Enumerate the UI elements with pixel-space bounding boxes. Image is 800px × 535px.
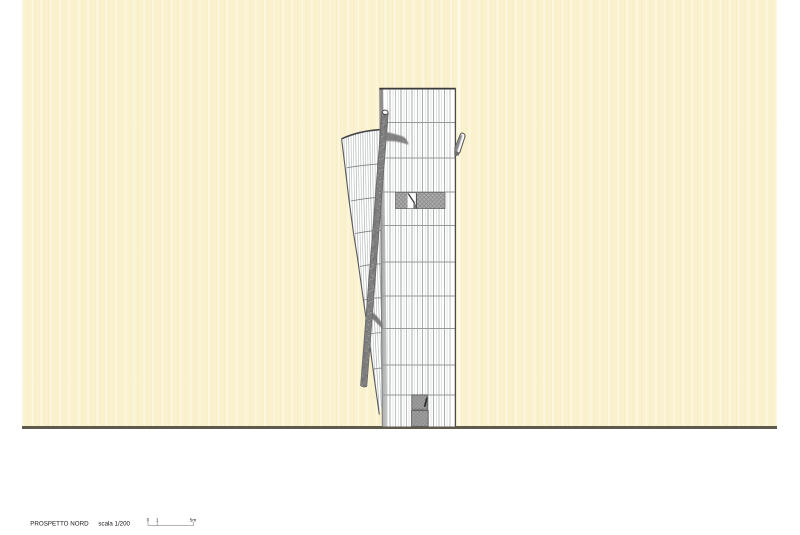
svg-text:PROSPETTO NORD: PROSPETTO NORD (30, 521, 89, 528)
svg-text:scala 1/200: scala 1/200 (98, 521, 130, 528)
svg-text:1: 1 (156, 517, 159, 522)
svg-text:5m: 5m (190, 517, 197, 522)
svg-text:0: 0 (147, 517, 150, 522)
